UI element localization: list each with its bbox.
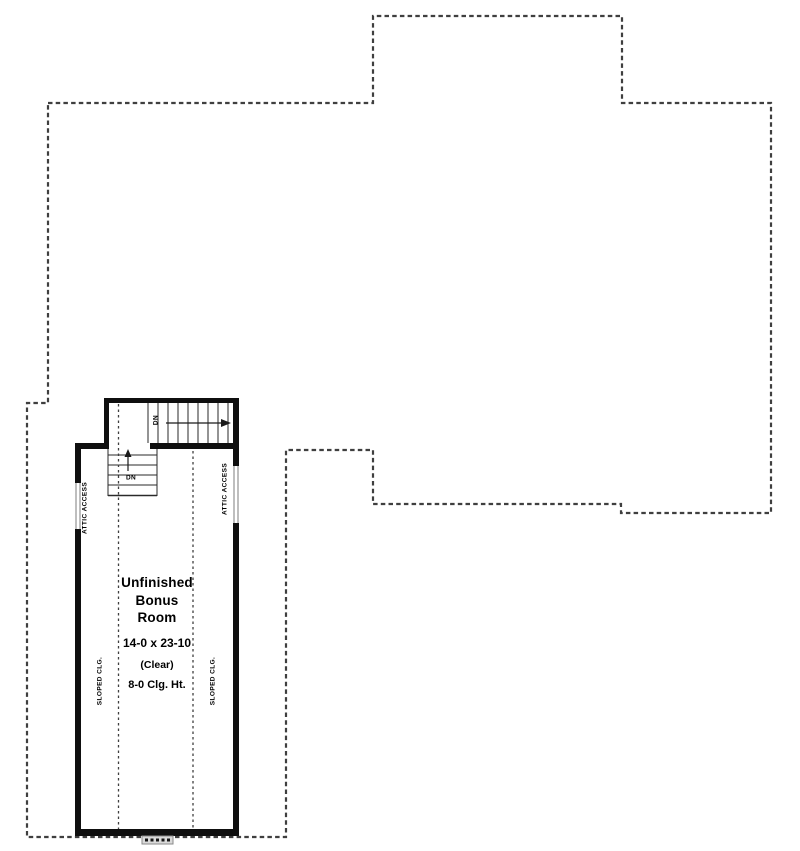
stairs-down-label-lower: DN [126, 475, 136, 482]
roof-outline-dashed [27, 16, 771, 837]
sloped-ceiling-label-left: SLOPED CLG. [97, 657, 104, 705]
stair-enclosure-left-wall [104, 398, 109, 448]
attic-access-left-opening-inner [80, 483, 81, 529]
stairs-down-label-upper: DN [153, 415, 160, 425]
room-left-wall-lower [75, 529, 81, 836]
gable-vent [142, 836, 173, 844]
stair-enclosure-top-wall [104, 398, 239, 403]
attic-access-label-right: ATTIC ACCESS [222, 463, 229, 515]
room-right-wall-upper [233, 398, 239, 466]
lower-stair-arrow [125, 449, 132, 471]
sloped-ceiling-label-right: SLOPED CLG. [210, 657, 217, 705]
attic-access-right-opening-inner [238, 466, 239, 523]
attic-access-right-opening [234, 466, 235, 523]
floor-plan-linework [0, 0, 800, 851]
room-bottom-wall [75, 829, 239, 836]
attic-access-left-opening [76, 483, 77, 529]
room-dimensions-label: 14-0 x 23-10 [82, 636, 232, 650]
room-left-wall-upper [75, 443, 81, 483]
floor-plan-canvas: Unfinished Bonus Room 14-0 x 23-10 (Clea… [0, 0, 800, 851]
room-name-label: Unfinished Bonus Room [82, 574, 232, 627]
room-right-wall-lower [233, 523, 239, 836]
understair-wall [150, 443, 239, 449]
attic-access-label-left: ATTIC ACCESS [82, 482, 89, 534]
lower-stair-flight [108, 449, 157, 496]
